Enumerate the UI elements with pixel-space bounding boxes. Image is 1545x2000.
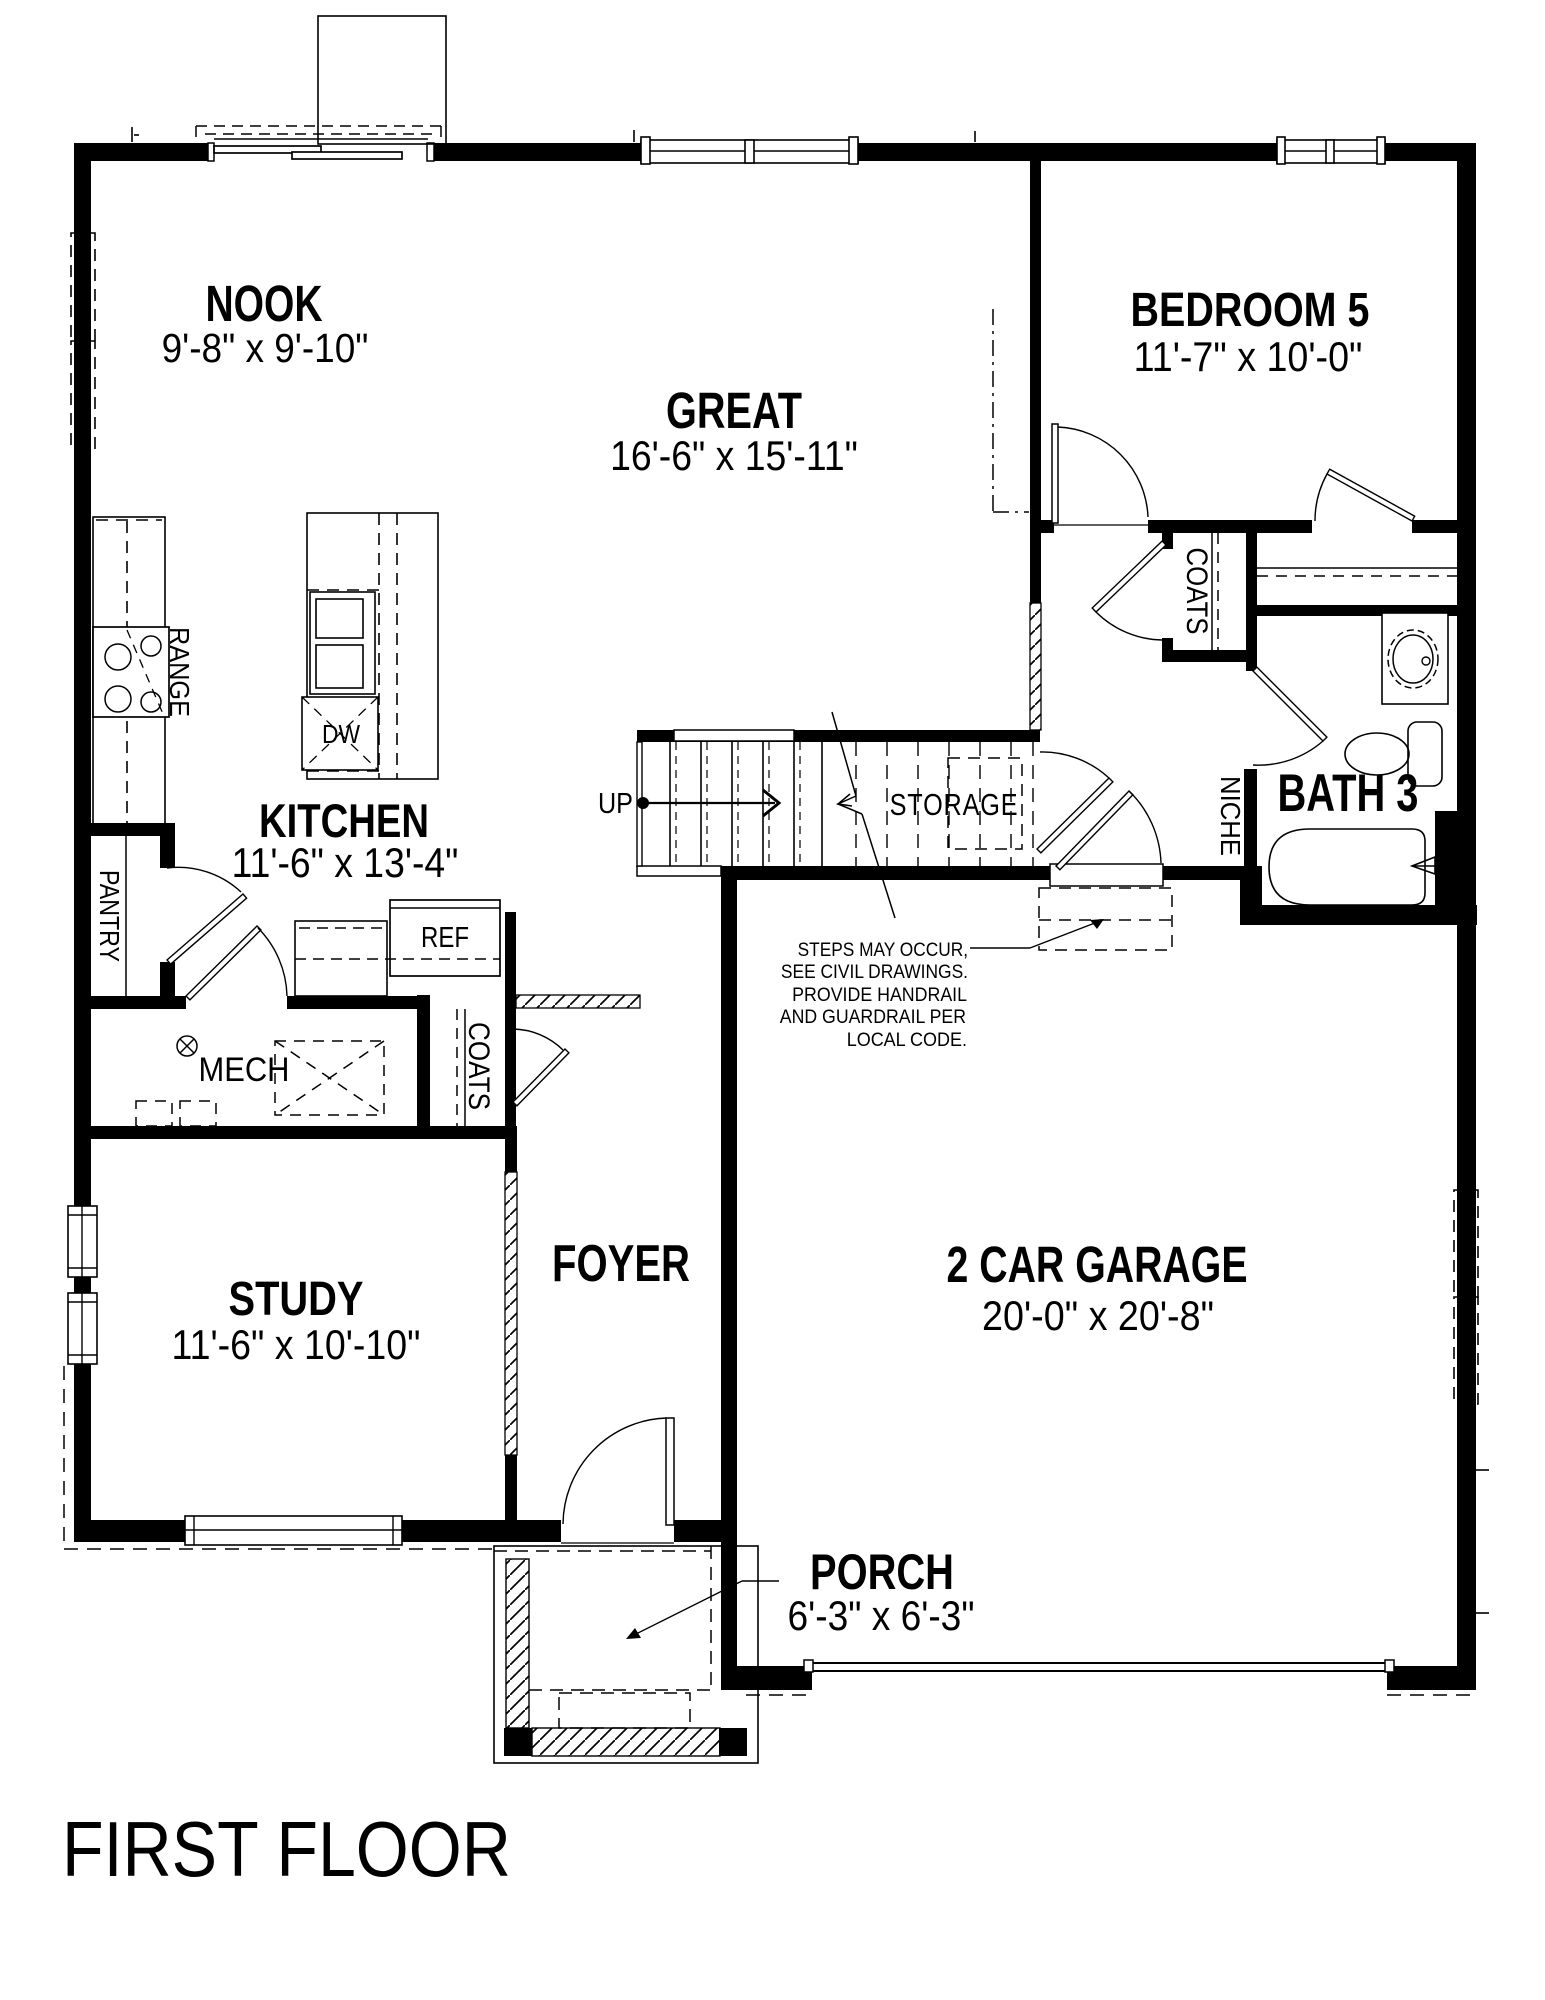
svg-text:COATS: COATS — [463, 1022, 496, 1110]
svg-text:11'-7" x 10'-0": 11'-7" x 10'-0" — [1134, 334, 1363, 380]
svg-text:MECH: MECH — [199, 1051, 290, 1089]
svg-text:DW: DW — [322, 721, 360, 750]
svg-text:11'-6" x 13'-4": 11'-6" x 13'-4" — [232, 840, 459, 887]
svg-text:NICHE: NICHE — [1215, 776, 1246, 856]
svg-text:REF: REF — [421, 921, 469, 954]
svg-text:NOOK: NOOK — [205, 275, 322, 332]
svg-text:AND GUARDRAIL PER: AND GUARDRAIL PER — [780, 1005, 966, 1027]
svg-text:11'-6" x 10'-10": 11'-6" x 10'-10" — [172, 1322, 421, 1368]
svg-text:COATS: COATS — [1181, 548, 1214, 635]
svg-text:GREAT: GREAT — [666, 382, 802, 439]
svg-text:9'-8" x 9'-10": 9'-8" x 9'-10" — [162, 326, 369, 371]
svg-text:2 CAR GARAGE: 2 CAR GARAGE — [946, 1236, 1247, 1293]
svg-text:PORCH: PORCH — [810, 1544, 954, 1600]
svg-text:STORAGE: STORAGE — [890, 786, 1019, 821]
svg-text:FOYER: FOYER — [552, 1234, 690, 1292]
svg-text:RANGE: RANGE — [164, 627, 195, 717]
svg-text:6'-3" x 6'-3": 6'-3" x 6'-3" — [788, 1593, 975, 1640]
svg-text:SEE CIVIL DRAWINGS.: SEE CIVIL DRAWINGS. — [781, 961, 968, 982]
svg-text:UP: UP — [598, 786, 633, 819]
svg-text:STEPS MAY OCCUR,: STEPS MAY OCCUR, — [798, 939, 968, 960]
svg-text:STUDY: STUDY — [229, 1273, 364, 1326]
svg-text:20'-0" x 20'-8": 20'-0" x 20'-8" — [982, 1293, 1214, 1339]
svg-text:16'-6" x 15'-11": 16'-6" x 15'-11" — [610, 433, 858, 479]
svg-text:PROVIDE HANDRAIL: PROVIDE HANDRAIL — [792, 983, 967, 1005]
svg-text:LOCAL CODE.: LOCAL CODE. — [847, 1029, 967, 1051]
svg-text:BEDROOM 5: BEDROOM 5 — [1131, 283, 1370, 337]
svg-text:FIRST FLOOR: FIRST FLOOR — [62, 1806, 511, 1893]
svg-text:PANTRY: PANTRY — [93, 870, 123, 962]
svg-text:BATH 3: BATH 3 — [1278, 764, 1419, 823]
